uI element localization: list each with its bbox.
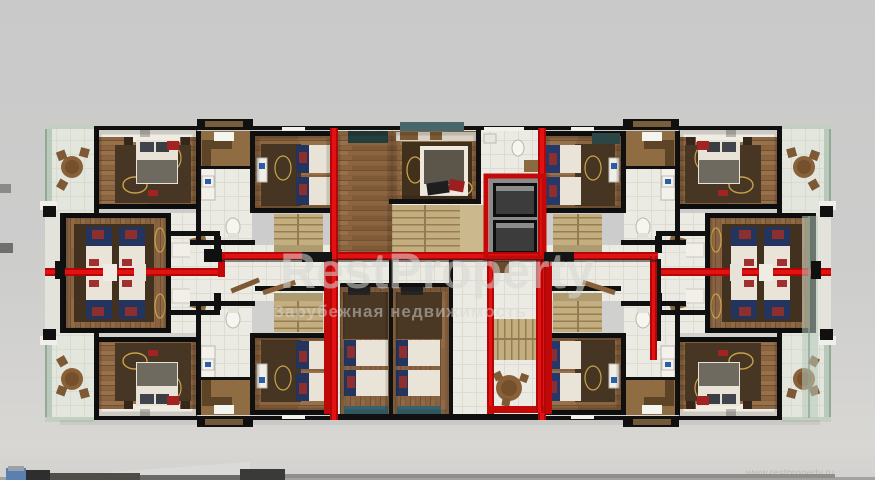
svg-text:Зарубежная недвижимость: Зарубежная недвижимость	[273, 302, 527, 321]
svg-text:RestProperty: RestProperty	[280, 243, 594, 299]
